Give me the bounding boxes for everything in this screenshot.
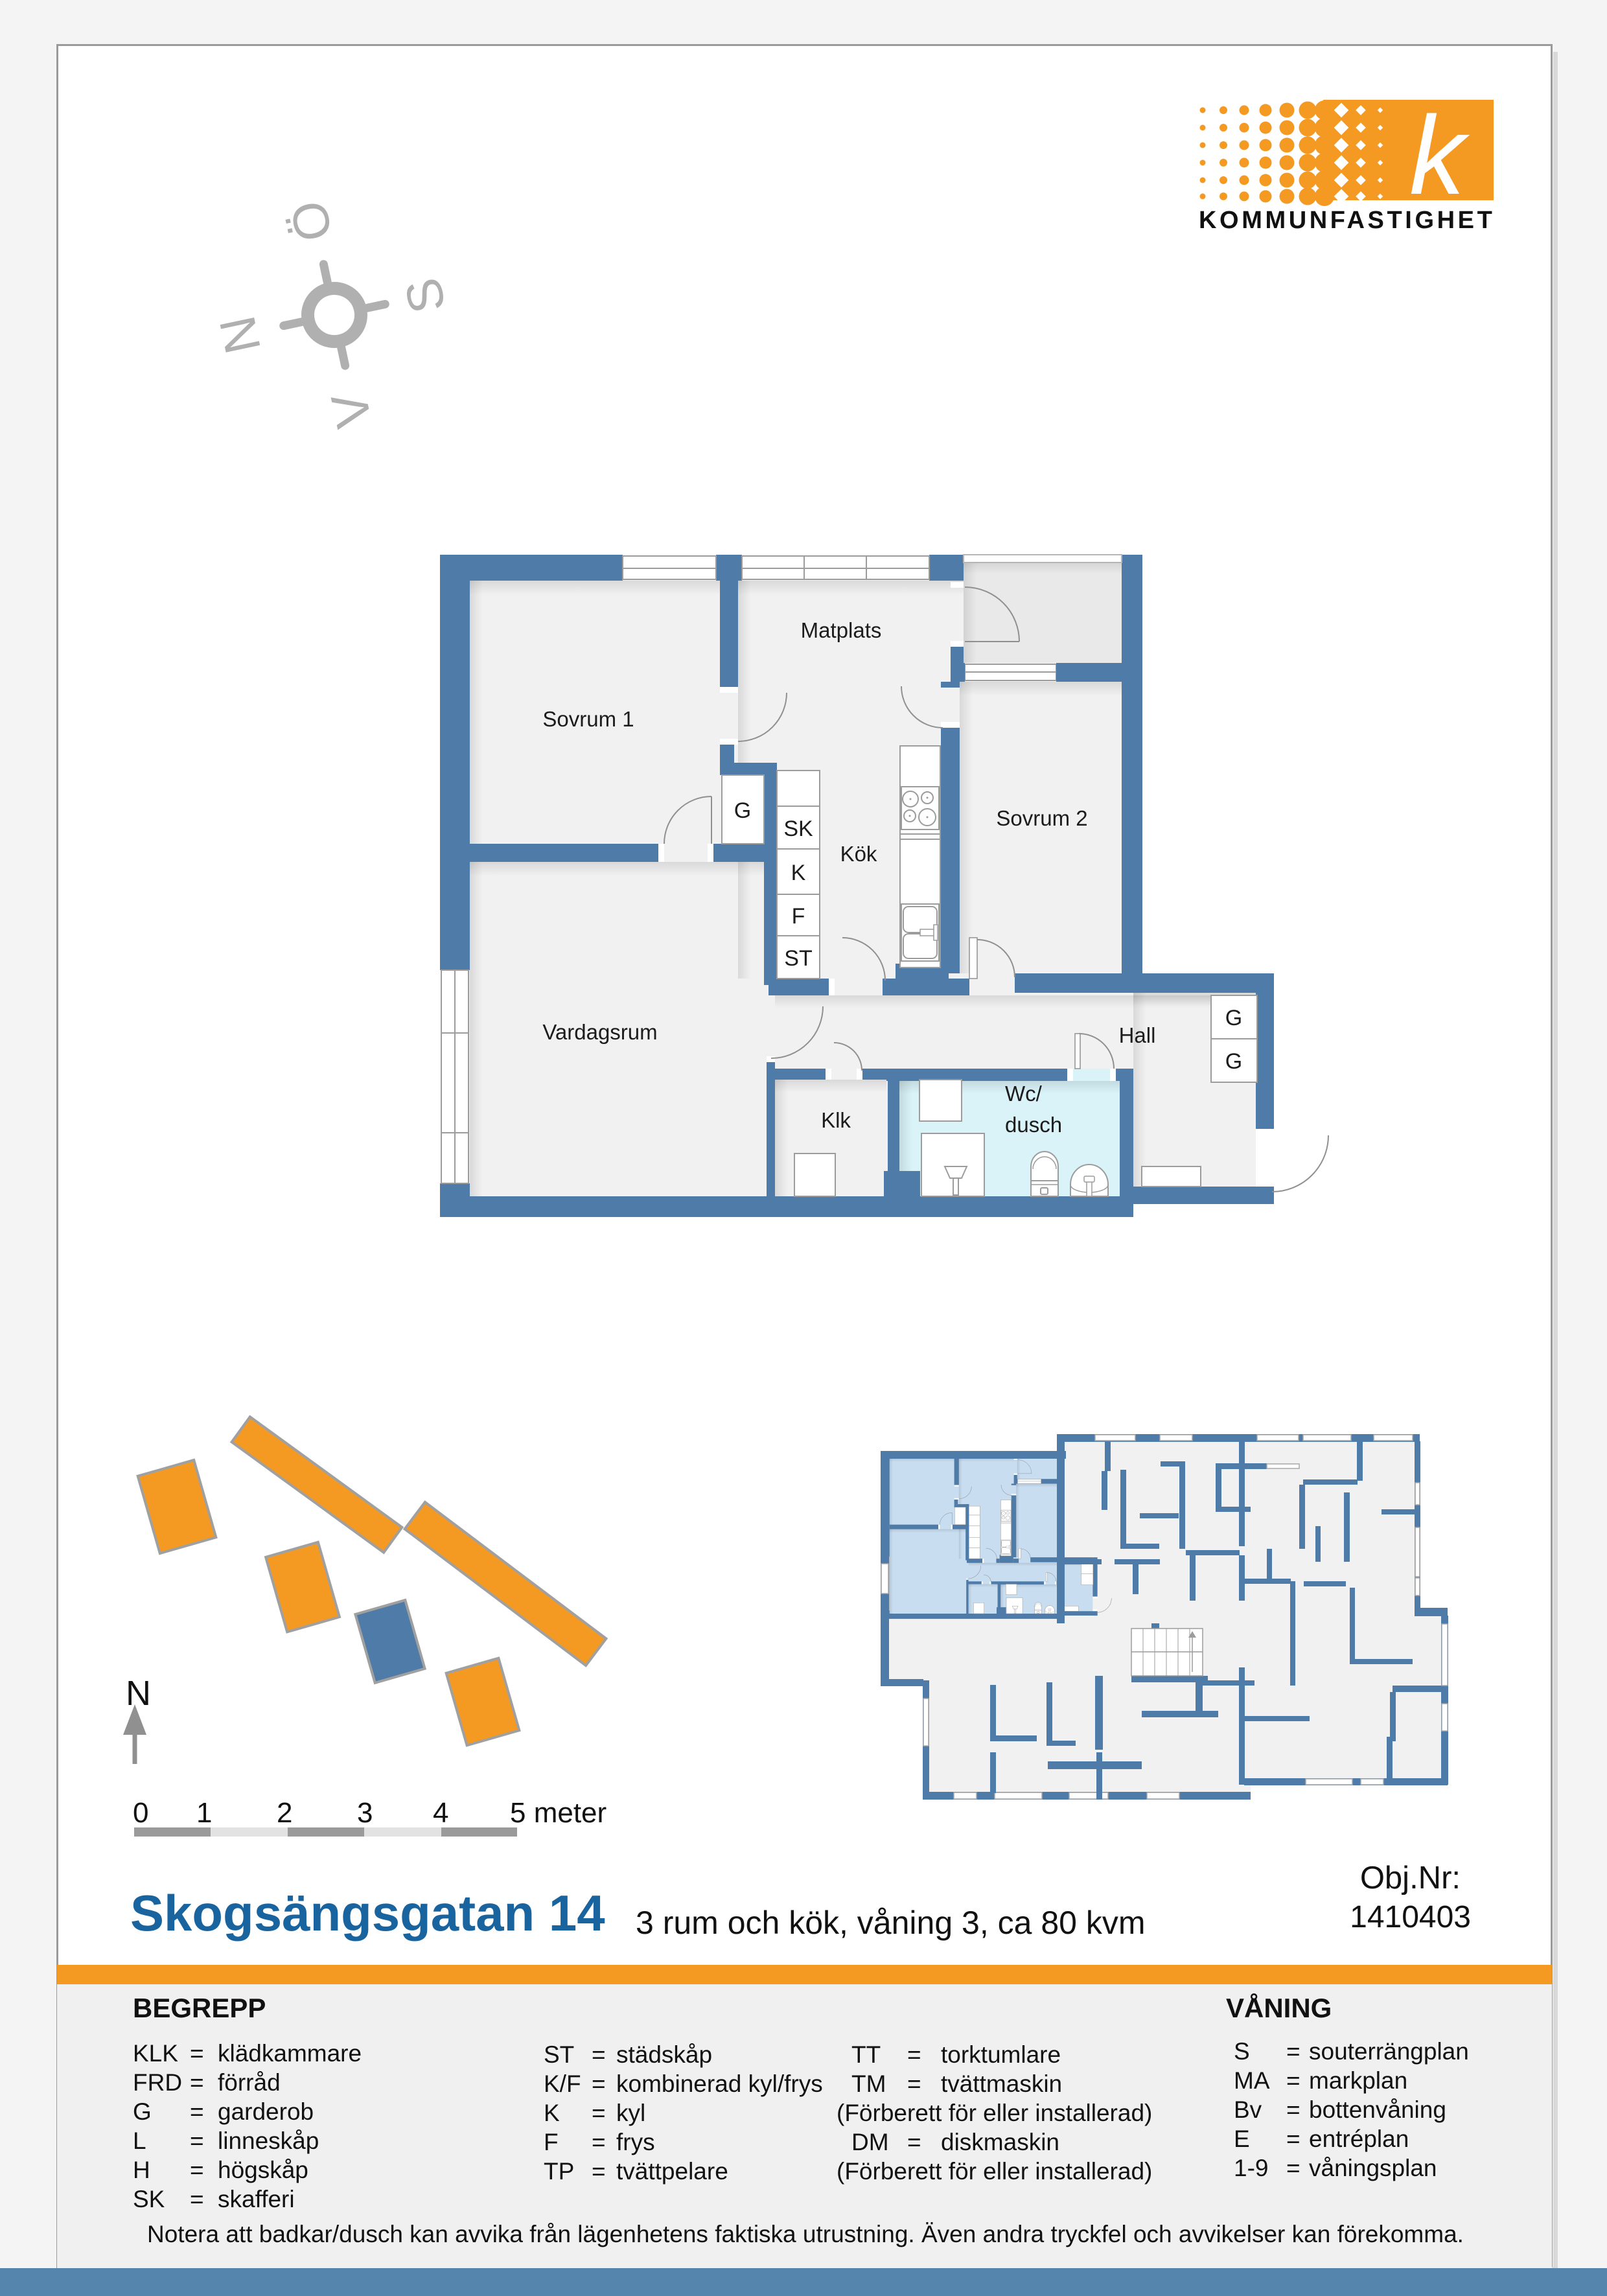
svg-text:TM: TM [851, 2070, 886, 2097]
svg-text:Sovrum 1: Sovrum 1 [542, 707, 634, 731]
svg-text:K: K [544, 2100, 560, 2126]
svg-text:=: = [190, 2098, 204, 2125]
svg-text:3 rum och kök, våning 3, ca 80: 3 rum och kök, våning 3, ca 80 kvm [636, 1905, 1145, 1941]
svg-text:KOMMUNFASTIGHET: KOMMUNFASTIGHET [1199, 207, 1495, 234]
svg-text:=: = [592, 2158, 606, 2185]
svg-text:markplan: markplan [1309, 2067, 1407, 2094]
svg-text:Sovrum 2: Sovrum 2 [996, 806, 1087, 830]
svg-text:SK: SK [133, 2186, 165, 2212]
svg-text:linneskåp: linneskåp [218, 2128, 319, 2154]
svg-text:Obj.Nr:: Obj.Nr: [1360, 1861, 1461, 1896]
svg-text:S: S [1234, 2038, 1250, 2065]
svg-text:=: = [1286, 2155, 1301, 2181]
svg-text:Klk: Klk [821, 1108, 851, 1132]
svg-text:G: G [1225, 1049, 1242, 1074]
svg-text:Notera att badkar/dusch kan av: Notera att badkar/dusch kan avvika från … [147, 2221, 1464, 2247]
svg-text:kyl: kyl [616, 2100, 645, 2126]
svg-text:4: 4 [433, 1797, 448, 1829]
svg-text:=: = [190, 2069, 204, 2096]
svg-text:3: 3 [357, 1797, 373, 1829]
svg-text:Matplats: Matplats [801, 618, 882, 642]
svg-text:=: = [907, 2070, 921, 2097]
svg-text:entréplan: entréplan [1309, 2126, 1409, 2152]
svg-text:Bv: Bv [1234, 2096, 1262, 2123]
svg-text:(Förberett för eller installer: (Förberett för eller installerad) [837, 2158, 1152, 2185]
svg-text:=: = [592, 2070, 606, 2097]
svg-text:klädkammare: klädkammare [218, 2040, 362, 2067]
svg-text:=: = [190, 2186, 204, 2212]
svg-text:=: = [190, 2157, 204, 2183]
svg-text:=: = [907, 2041, 921, 2068]
svg-text:=: = [1286, 2067, 1301, 2094]
svg-text:högskåp: högskåp [218, 2157, 308, 2183]
svg-text:frys: frys [616, 2129, 655, 2155]
svg-text:F: F [544, 2129, 559, 2155]
svg-text:=: = [907, 2129, 921, 2155]
svg-text:G: G [133, 2098, 152, 2125]
svg-text:=: = [592, 2129, 606, 2155]
svg-text:bottenvåning: bottenvåning [1309, 2096, 1446, 2123]
svg-text:garderob: garderob [218, 2098, 314, 2125]
svg-text:1: 1 [196, 1797, 212, 1829]
svg-text:torktumlare: torktumlare [941, 2041, 1061, 2068]
svg-text:0: 0 [133, 1797, 148, 1829]
svg-text:N: N [126, 1674, 151, 1713]
svg-text:1410403: 1410403 [1350, 1900, 1471, 1934]
svg-text:tvättpelare: tvättpelare [616, 2158, 728, 2185]
svg-text:1-9: 1-9 [1234, 2155, 1268, 2181]
svg-text:städskåp: städskåp [616, 2041, 712, 2068]
svg-text:=: = [1286, 2096, 1301, 2123]
svg-text:K: K [791, 861, 806, 885]
svg-text:FRD: FRD [133, 2069, 182, 2096]
svg-text:dusch: dusch [1005, 1113, 1062, 1137]
svg-text:skafferi: skafferi [218, 2186, 295, 2212]
svg-text:Skogsängsgatan 14: Skogsängsgatan 14 [130, 1884, 605, 1942]
svg-text:=: = [592, 2041, 606, 2068]
svg-text:2: 2 [277, 1797, 292, 1829]
svg-text:MA: MA [1234, 2067, 1270, 2094]
svg-text:=: = [1286, 2126, 1301, 2152]
svg-text:diskmaskin: diskmaskin [941, 2129, 1059, 2155]
svg-text:Wc/: Wc/ [1005, 1082, 1043, 1106]
svg-text:=: = [1286, 2038, 1301, 2065]
svg-text:G: G [734, 798, 751, 823]
svg-text:Kök: Kök [840, 842, 877, 866]
svg-text:SK: SK [783, 817, 813, 841]
svg-text:G: G [1225, 1006, 1242, 1030]
svg-text:E: E [1234, 2126, 1250, 2152]
svg-text:VÅNING: VÅNING [1226, 1993, 1332, 2023]
svg-text:TT: TT [851, 2041, 881, 2068]
svg-text:Hall: Hall [1119, 1023, 1156, 1047]
svg-text:kombinerad kyl/frys: kombinerad kyl/frys [616, 2070, 823, 2097]
svg-text:BEGREPP: BEGREPP [133, 1993, 266, 2023]
svg-text:våningsplan: våningsplan [1309, 2155, 1437, 2181]
svg-text:förråd: förråd [218, 2069, 281, 2096]
svg-text:ST: ST [544, 2041, 574, 2068]
svg-text:k: k [1409, 93, 1470, 218]
svg-text:(Förberett för eller installer: (Förberett för eller installerad) [837, 2100, 1152, 2126]
svg-text:souterrängplan: souterrängplan [1309, 2038, 1469, 2065]
svg-text:=: = [592, 2100, 606, 2126]
svg-text:5 meter: 5 meter [510, 1797, 607, 1829]
svg-text:=: = [190, 2040, 204, 2067]
svg-text:L: L [133, 2128, 146, 2154]
svg-text:H: H [133, 2157, 150, 2183]
svg-text:F: F [792, 904, 805, 929]
svg-text:=: = [190, 2128, 204, 2154]
svg-text:DM: DM [851, 2129, 889, 2155]
svg-text:Vardagsrum: Vardagsrum [542, 1020, 657, 1044]
svg-text:KLK: KLK [133, 2040, 178, 2067]
svg-text:K/F: K/F [544, 2070, 581, 2097]
svg-text:ST: ST [784, 946, 812, 971]
svg-text:TP: TP [544, 2158, 574, 2185]
svg-text:tvättmaskin: tvättmaskin [941, 2070, 1062, 2097]
